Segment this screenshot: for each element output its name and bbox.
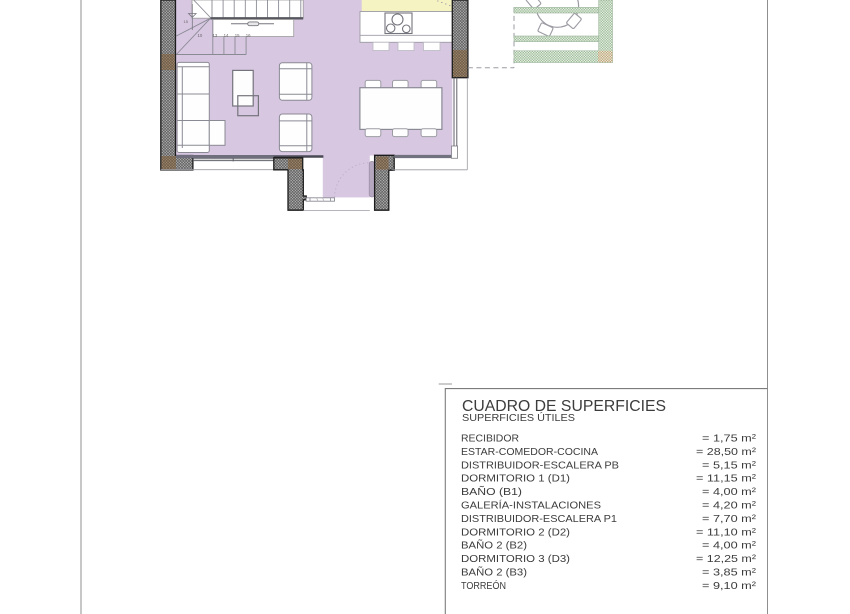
svg-text:DISTRIBUIDOR-ESCALERA P1: DISTRIBUIDOR-ESCALERA P1 — [461, 513, 617, 525]
svg-text:SUPERFICIES ÚTILES: SUPERFICIES ÚTILES — [462, 411, 575, 424]
svg-text:= 12,25 m²: = 12,25 m² — [696, 553, 757, 565]
svg-text:RECIBIDOR: RECIBIDOR — [461, 433, 519, 445]
svg-text:= 11,15 m²: = 11,15 m² — [696, 473, 757, 485]
svg-text:= 7,70 m²: = 7,70 m² — [702, 513, 757, 525]
svg-text:= 4,00 m²: = 4,00 m² — [702, 486, 757, 498]
svg-text:= 1,75 m²: = 1,75 m² — [702, 433, 757, 445]
svg-text:DISTRIBUIDOR-ESCALERA PB: DISTRIBUIDOR-ESCALERA PB — [461, 459, 619, 471]
svg-text:15: 15 — [184, 19, 189, 24]
svg-text:= 4,00 m²: = 4,00 m² — [702, 540, 757, 552]
svg-text:= 4,20 m²: = 4,20 m² — [702, 500, 757, 512]
svg-text:DORMITORIO 2 (D2): DORMITORIO 2 (D2) — [461, 526, 570, 538]
svg-text:DORMITORIO 1 (D1): DORMITORIO 1 (D1) — [461, 473, 570, 485]
svg-text:= 5,15 m²: = 5,15 m² — [702, 459, 757, 471]
svg-text:TORREÓN: TORREÓN — [461, 579, 506, 592]
svg-text:15: 15 — [235, 33, 240, 38]
svg-text:= 28,50 m²: = 28,50 m² — [696, 446, 757, 458]
svg-text:= 11,10 m²: = 11,10 m² — [696, 526, 757, 538]
svg-text:BAÑO 2 (B3): BAÑO 2 (B3) — [461, 566, 527, 579]
svg-text:10: 10 — [198, 33, 203, 38]
svg-text:16: 16 — [246, 33, 251, 38]
svg-text:BAÑO 2 (B2): BAÑO 2 (B2) — [461, 539, 527, 552]
svg-text:BAÑO (B1): BAÑO (B1) — [461, 485, 522, 498]
svg-text:GALERÍA-INSTALACIONES: GALERÍA-INSTALACIONES — [461, 499, 601, 512]
svg-text:= 9,10 m²: = 9,10 m² — [702, 580, 757, 592]
svg-text:14: 14 — [224, 33, 229, 38]
svg-text:DORMITORIO 3 (D3): DORMITORIO 3 (D3) — [461, 553, 570, 565]
svg-text:ESTAR-COMEDOR-COCINA: ESTAR-COMEDOR-COCINA — [461, 446, 598, 458]
svg-text:13: 13 — [213, 33, 218, 38]
svg-text:= 3,85 m²: = 3,85 m² — [702, 567, 757, 579]
